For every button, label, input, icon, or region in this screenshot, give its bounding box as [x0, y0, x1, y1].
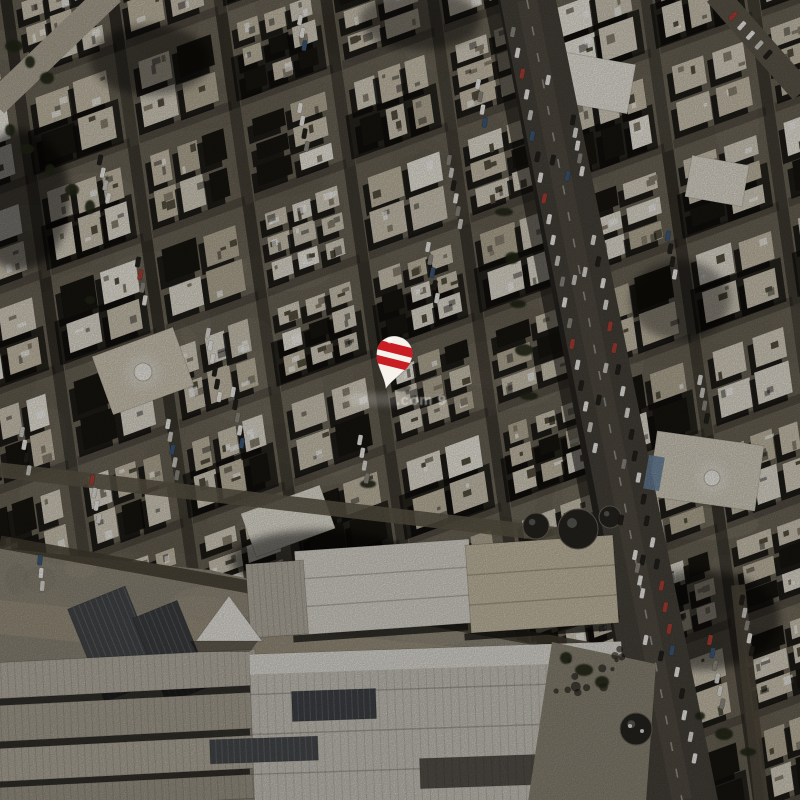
satellite-imagery: [0, 0, 800, 800]
location-marker-pin[interactable]: [368, 328, 420, 394]
marker-shadow: [393, 385, 411, 392]
grain-overlay: [0, 0, 800, 800]
satellite-map[interactable]: .com 9: [0, 0, 800, 800]
